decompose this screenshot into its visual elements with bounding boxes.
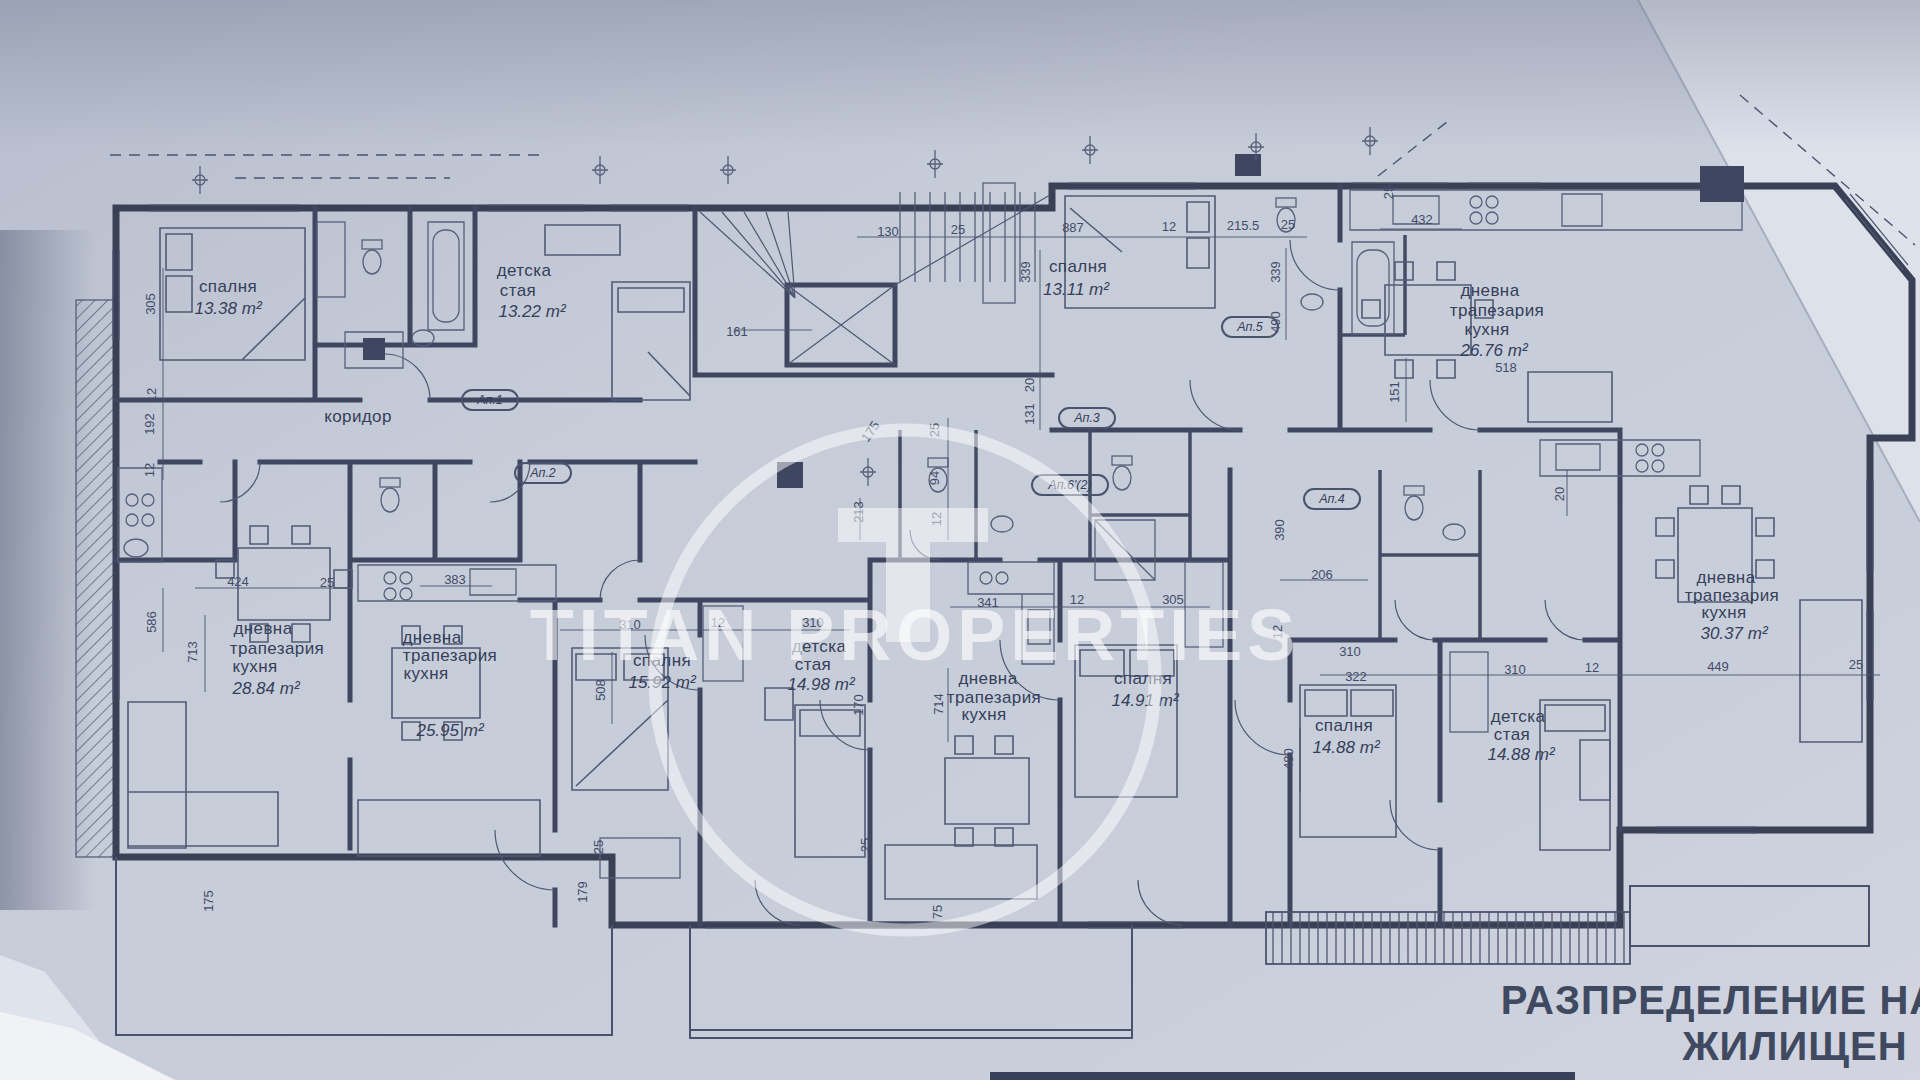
dim-label: 432: [1411, 212, 1433, 227]
room-area-kids-e: 14.88 m²: [1487, 745, 1555, 764]
dim-label: 25: [1381, 185, 1396, 199]
dim-label: 179: [575, 881, 590, 903]
room-area-living-e: 30.37 m²: [1700, 624, 1768, 643]
dim-label: 339: [1268, 261, 1283, 283]
room-label-living-c: кухня: [961, 705, 1006, 724]
dim-label: 449: [1707, 659, 1729, 674]
floor-plan-svg: 130 25 887 12 215.5 25 432 161 339 20 13…: [0, 0, 1920, 1080]
dim-label: 424: [227, 574, 249, 589]
dim-label: 170: [851, 694, 866, 716]
room-area-bedroom-n: 13.11 m²: [1043, 280, 1110, 299]
room-label-kids-nw: детска: [497, 261, 552, 280]
dim-label: 310: [1339, 644, 1361, 659]
dim-label: 25: [591, 840, 606, 854]
apartment-label-1-text: Ап.1: [476, 393, 503, 407]
room-label-living-w: кухня: [232, 657, 277, 676]
dim-label: 94: [927, 471, 942, 485]
watermark-text: TITAN PROPERTIES: [530, 595, 1301, 675]
kitchen-block: [1700, 166, 1744, 202]
dim-label: 175: [201, 890, 216, 912]
dim-label: 310: [1504, 662, 1526, 677]
drawing-title-line2: ЖИЛИЩЕН: [1681, 1024, 1907, 1068]
room-label-kids-e: стая: [1494, 725, 1530, 744]
room-label-living-ne: трапезария: [1450, 301, 1544, 320]
dim-label: 390: [1272, 519, 1287, 541]
dim-label: 130: [877, 224, 899, 239]
room-label-living-sw: трапезария: [403, 646, 497, 665]
dim-label: 12: [1585, 660, 1599, 675]
room-area-bedroom-c2: 14.91 m²: [1111, 691, 1179, 710]
room-note-living-ne: 518: [1495, 360, 1517, 375]
dim-label: 12: [1162, 219, 1176, 234]
room-area-kids-nw: 13.22 m²: [498, 302, 566, 321]
balcony-railing: [1266, 912, 1630, 964]
dim-label: 305: [143, 293, 158, 315]
room-area-bedroom-nw: 13.38 m²: [194, 299, 262, 318]
room-label-living-ne: кухня: [1464, 320, 1509, 339]
dim-label: 586: [144, 611, 159, 633]
room-label-kids-e: детска: [1491, 707, 1546, 726]
dim-label: 131: [1022, 403, 1037, 425]
watermark-monogram: [838, 508, 988, 542]
dim-label: 713: [185, 641, 200, 663]
room-area-living-sw: 25.95 m²: [415, 721, 484, 740]
dim-label: 20: [1022, 378, 1037, 392]
dim-label: 25: [1281, 217, 1295, 232]
apartment-label-2-text: Ап.2: [529, 466, 556, 480]
dim-label: 490: [1268, 311, 1283, 333]
dim-label: 480: [1281, 748, 1296, 770]
dim-label: 339: [1018, 261, 1033, 283]
room-label-bedroom-e: спалня: [1315, 716, 1373, 735]
dim-label: 206: [1311, 567, 1333, 582]
room-label-living-w: трапезария: [230, 639, 324, 658]
dim-label: 322: [1345, 669, 1367, 684]
dim-label: 151: [1387, 381, 1402, 403]
room-label-bedroom-n: спалня: [1049, 257, 1107, 276]
room-label-living-sw: кухня: [403, 664, 448, 683]
dim-label: 383: [444, 572, 466, 587]
dim-label: 25: [1849, 657, 1863, 672]
dim-label: 20: [1552, 487, 1567, 501]
kitchen-sink-block: [363, 338, 385, 360]
drawing-title-line1: РАЗПРЕДЕЛЕНИЕ НА: [1501, 978, 1920, 1022]
room-label-living-ne: дневна: [1460, 281, 1519, 300]
neighbor-wall-hatch: [76, 300, 116, 857]
dim-label: 161: [726, 324, 748, 339]
apartment-label-3-text: Ап.3: [1073, 411, 1100, 425]
dim-label: 714: [931, 693, 946, 715]
room-area-living-w: 28.84 m²: [231, 679, 300, 698]
dim-label: 12: [142, 463, 157, 477]
room-area-bedroom-c: 15.92 m²: [628, 673, 696, 692]
room-label-bedroom-nw: спалня: [199, 277, 257, 296]
apartment-label-4-text: Ап.4: [1318, 492, 1345, 506]
dim-label: 25: [320, 575, 334, 590]
dim-label: 25: [951, 222, 965, 237]
dim-label: 12: [144, 388, 159, 402]
kitchen-block: [1235, 154, 1261, 176]
dim-label: 508: [593, 679, 608, 701]
dim-label: 192: [142, 413, 157, 435]
dim-label: 25: [858, 838, 873, 852]
room-area-bedroom-e: 14.88 m²: [1312, 738, 1380, 757]
room-label-living-e: кухня: [1701, 603, 1746, 622]
dim-label: 887: [1062, 220, 1084, 235]
apartment-label-5-text: Ап.5: [1236, 320, 1263, 334]
next-sheet-edge: [990, 1072, 1575, 1080]
dim-label: 215.5: [1227, 218, 1260, 233]
room-area-living-ne: 26.76 m²: [1459, 341, 1528, 360]
room-label-kids-nw: стая: [500, 281, 536, 300]
floor-plan-photo: 130 25 887 12 215.5 25 432 161 339 20 13…: [0, 0, 1920, 1080]
room-label-living-sw: дневна: [402, 628, 461, 647]
dim-label: 75: [930, 905, 945, 919]
room-label-living-e: дневна: [1696, 568, 1755, 587]
room-area-kids-c: 14.98 m²: [787, 675, 855, 694]
room-label-living-w: дневна: [233, 619, 292, 638]
room-label-corridor: коридор: [324, 407, 392, 426]
